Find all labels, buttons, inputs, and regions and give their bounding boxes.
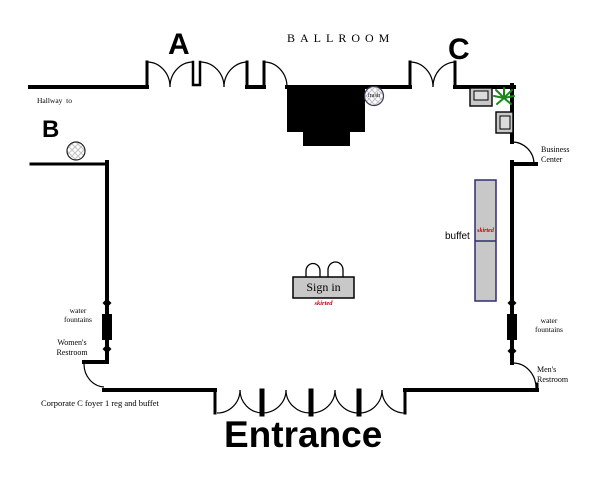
corporate-note-label: Corporate C foyer 1 reg and buffet (41, 398, 159, 409)
buffet-skirted-label: skirted (473, 228, 498, 236)
zone-a-label: A (168, 26, 190, 64)
zone-c-label: C (448, 31, 470, 69)
water-fountains-left-label: water fountains (55, 306, 101, 325)
water-fountain-right (507, 314, 517, 340)
chair-arch-icon (328, 262, 343, 277)
water-fountains-right-label: water fountains (526, 316, 572, 335)
entrance-label: Entrance (224, 412, 382, 458)
stage (287, 87, 365, 146)
sign-in-skirted-label: skirted (293, 300, 354, 308)
buffet-table (475, 180, 496, 301)
chair-icon (470, 88, 492, 106)
hallway-label: Hallway to (37, 96, 72, 105)
floor-plan-canvas: A BALLROOM C Hallway to B trash Business… (0, 0, 600, 480)
column-b-icon (67, 142, 85, 160)
water-fountain-left (102, 314, 112, 340)
chair-arch-icon (306, 264, 320, 278)
ballroom-label: BALLROOM (287, 31, 394, 46)
buffet-label: buffet (445, 231, 470, 244)
business-center-furniture (470, 88, 514, 133)
womens-restroom-label: Women's Restroom (48, 338, 96, 358)
trash-label: trash (361, 92, 387, 100)
chair-icon (496, 112, 513, 133)
business-center-label: Business Center (541, 145, 569, 165)
mens-restroom-label: Men's Restroom (537, 365, 568, 385)
sign-in-label: Sign in (293, 280, 354, 295)
zone-b-label: B (42, 115, 59, 145)
